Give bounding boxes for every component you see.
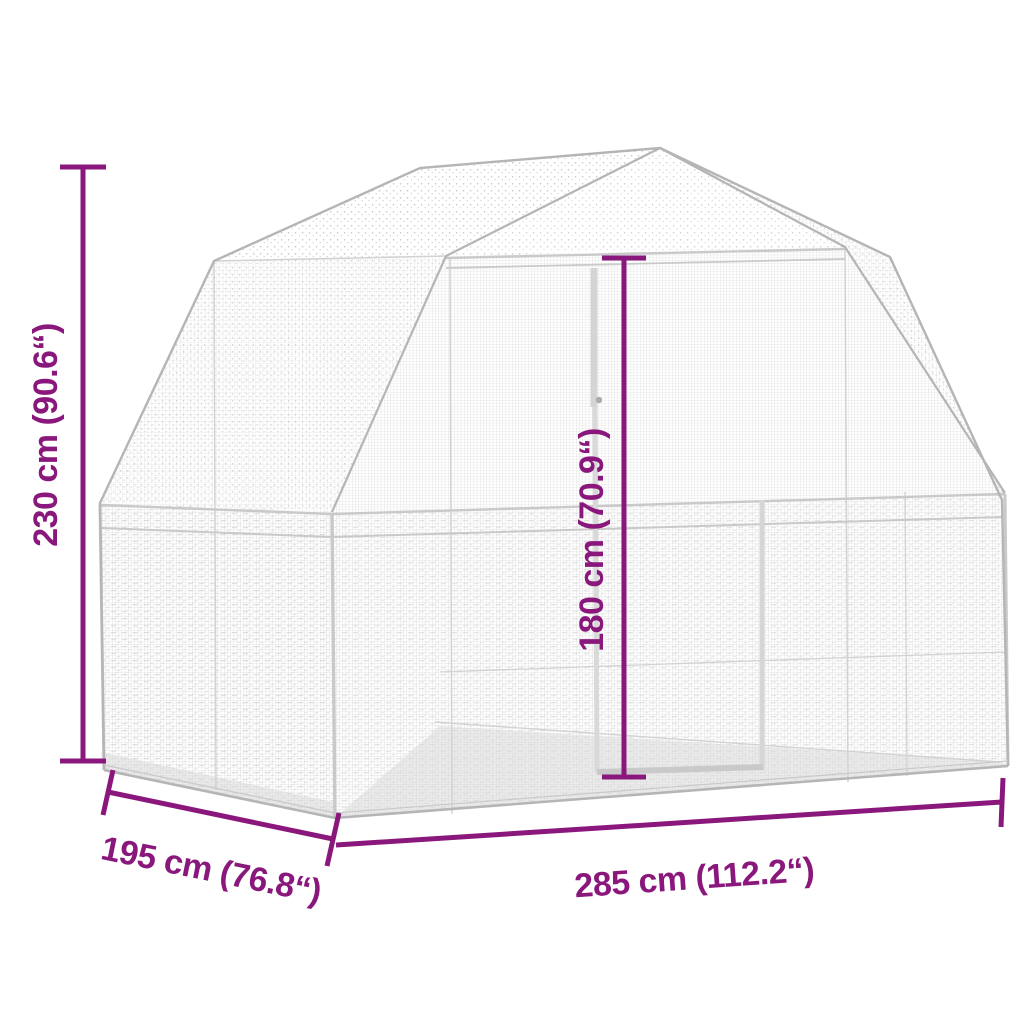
dim-total-height: 230 cm (90.6“) [27,167,106,761]
dim-label-depth: 195 cm (76.8“) [98,829,325,911]
product-diagram-canvas: 230 cm (90.6“) 180 cm (70.9“) 195 cm (76… [0,0,1024,1024]
dim-label-width: 285 cm (112.2“) [573,851,815,906]
aviary-structure [100,148,1008,818]
dim-tick-285-right [1001,778,1003,827]
dim-label-total-height: 230 cm (90.6“) [27,323,65,547]
door-handle [596,397,602,403]
dim-label-door-height: 180 cm (70.9“) [573,428,611,652]
aviary-dimension-diagram: 230 cm (90.6“) 180 cm (70.9“) 195 cm (76… [0,0,1024,1024]
